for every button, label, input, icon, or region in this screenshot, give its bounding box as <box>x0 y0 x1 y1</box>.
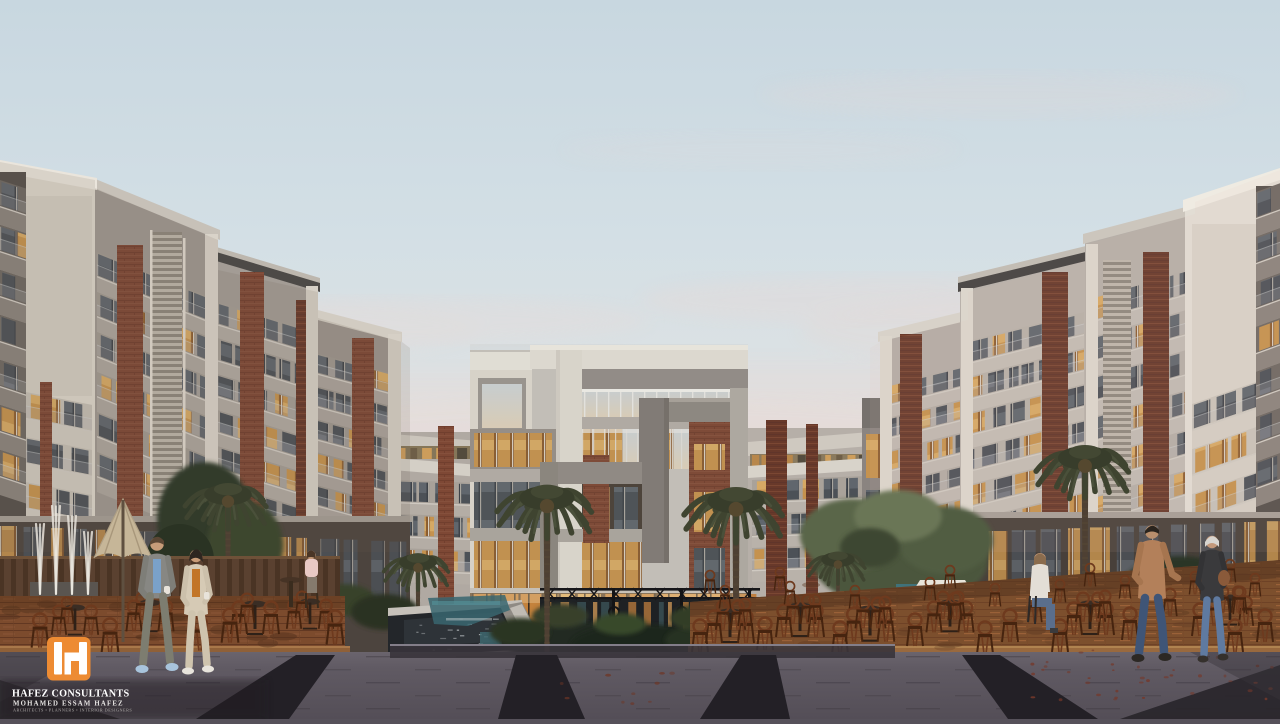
svg-text:HAFEZ CONSULTANTS: HAFEZ CONSULTANTS <box>12 689 130 700</box>
svg-text:ARCHITECTS • PLANNERS • INTERI: ARCHITECTS • PLANNERS • INTERIOR DESIGNE… <box>13 708 132 713</box>
svg-text:MOHAMED ESSAM HAFEZ: MOHAMED ESSAM HAFEZ <box>13 701 124 708</box>
